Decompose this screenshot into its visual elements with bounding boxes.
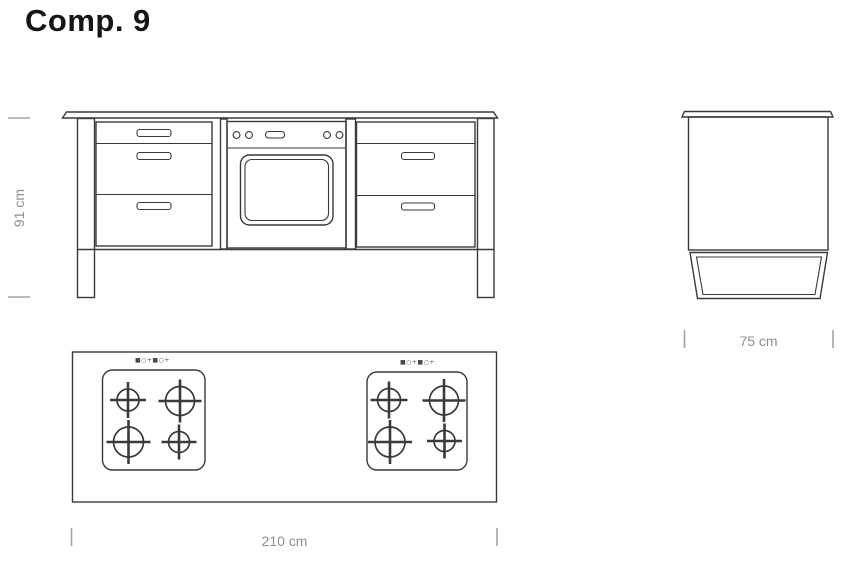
side-plinth-outer	[690, 253, 828, 299]
side-view	[682, 112, 833, 299]
hob-control-marks-icon: ■○+■○+	[400, 359, 435, 366]
drawing-canvas	[0, 0, 842, 562]
gas-burner-icon	[368, 420, 412, 464]
front-right-leg	[478, 119, 495, 298]
drawer-handle	[137, 130, 171, 137]
width-dimension-label: 210 cm	[72, 533, 497, 549]
front-left-leg	[78, 119, 95, 298]
left-drawer-unit	[96, 122, 212, 246]
worktop-plan	[73, 352, 497, 502]
side-plinth-inner	[697, 257, 822, 295]
side-countertop	[682, 112, 833, 118]
gas-burner-icon	[427, 424, 462, 459]
gas-burner-icon	[159, 380, 202, 423]
right-drawer-unit	[357, 122, 476, 247]
gas-burner-icon	[371, 382, 408, 419]
oven-window-inner	[245, 160, 329, 221]
oven-display	[266, 132, 285, 139]
depth-dimension-label: 75 cm	[684, 333, 833, 349]
oven-right-stile	[346, 119, 356, 249]
drawer-handle	[137, 203, 171, 210]
front-view	[63, 112, 498, 298]
height-dimension-label: 91 cm	[11, 177, 27, 239]
gas-burner-icon	[107, 420, 151, 464]
gas-burner-icon	[110, 382, 146, 418]
oven-knob-icon	[233, 132, 240, 139]
oven-knob-icon	[324, 132, 331, 139]
front-countertop	[63, 112, 498, 118]
hob-panel	[103, 370, 206, 470]
oven-left-stile	[221, 119, 228, 249]
drawer-handle	[137, 153, 171, 160]
top-view	[73, 352, 497, 502]
side-body	[689, 117, 829, 250]
hob-control-marks-icon: ■○+■○+	[135, 357, 170, 364]
gas-burner-icon	[423, 379, 466, 422]
dimension-ticks	[8, 118, 833, 546]
drawer-handle	[402, 203, 435, 210]
drawer-handle	[402, 153, 435, 160]
oven-knob-icon	[336, 132, 343, 139]
gas-burner-icon	[162, 425, 197, 460]
technical-drawing-page: Comp. 9	[0, 0, 842, 562]
oven-knob-icon	[246, 132, 253, 139]
oven-window-outer	[241, 155, 334, 225]
